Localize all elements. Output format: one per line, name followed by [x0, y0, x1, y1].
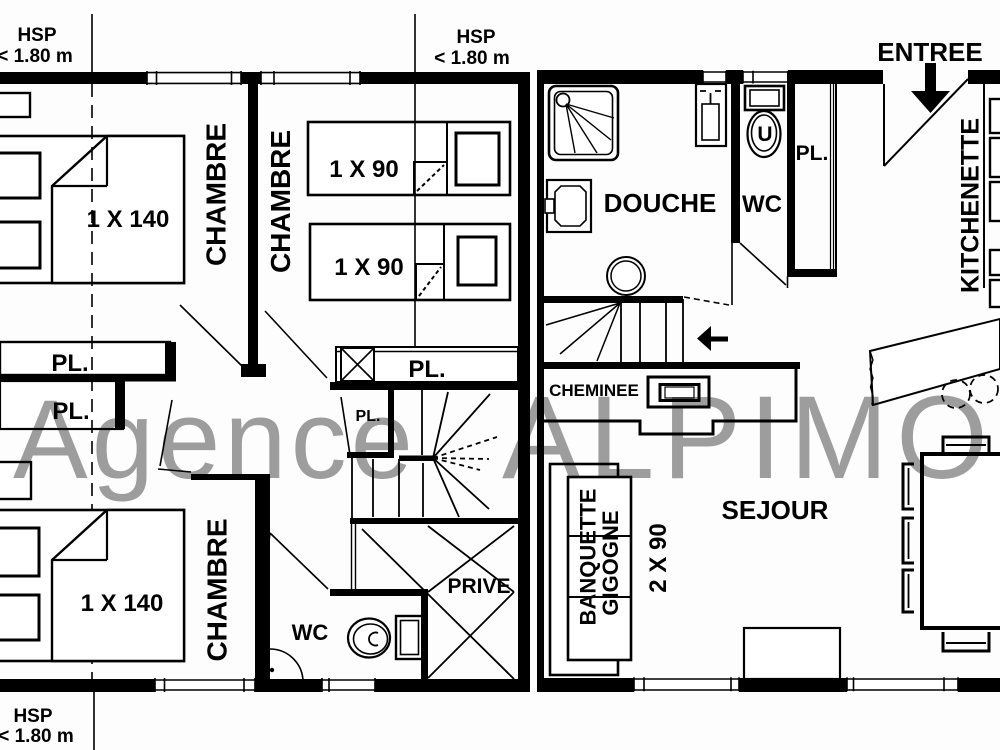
svg-text:WC: WC [292, 620, 329, 645]
svg-text:< 1.80 m: < 1.80 m [0, 46, 73, 67]
svg-text:PL.: PL. [51, 350, 88, 377]
svg-text:< 1.80 m: < 1.80 m [434, 48, 510, 69]
svg-text:BANQUETTE: BANQUETTE [575, 489, 600, 626]
svg-text:KITCHENETTE: KITCHENETTE [957, 118, 985, 293]
svg-text:HSP: HSP [17, 25, 56, 46]
svg-text:1 X 140: 1 X 140 [87, 206, 170, 233]
svg-text:ALPIMO: ALPIMO [502, 372, 996, 504]
svg-text:ENTREE: ENTREE [877, 37, 982, 67]
svg-text:WC: WC [742, 191, 782, 218]
svg-text:HSP: HSP [456, 27, 495, 48]
svg-text:PL.: PL. [796, 142, 829, 165]
svg-text:1 X 90: 1 X 90 [334, 254, 403, 281]
svg-text:GIGOGNE: GIGOGNE [598, 510, 623, 615]
svg-text:U: U [757, 123, 772, 146]
svg-text:Agence: Agence [13, 377, 417, 502]
svg-text:CHAMBRE: CHAMBRE [265, 130, 296, 273]
svg-text:PRIVE: PRIVE [447, 575, 510, 598]
svg-text:< 1.80 m: < 1.80 m [0, 726, 74, 747]
svg-text:1 X 90: 1 X 90 [329, 156, 398, 183]
svg-text:HSP: HSP [13, 706, 52, 727]
svg-text:1 X 140: 1 X 140 [81, 590, 164, 617]
svg-text:DOUCHE: DOUCHE [604, 188, 717, 218]
svg-text:2 X 90: 2 X 90 [645, 523, 672, 592]
svg-text:CHAMBRE: CHAMBRE [201, 123, 232, 266]
svg-text:CHAMBRE: CHAMBRE [202, 518, 233, 661]
